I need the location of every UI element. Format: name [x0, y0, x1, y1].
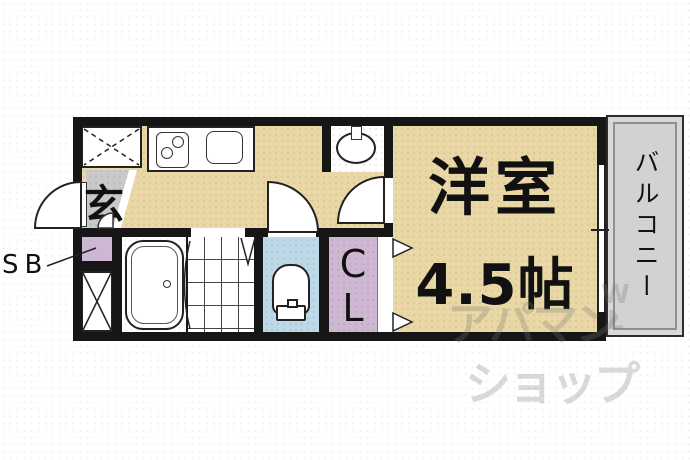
washroom-folding-door-icon: [241, 238, 255, 264]
bath-door-arc: [185, 241, 191, 329]
entrance-door-arc: [35, 182, 81, 228]
sb-leader-line: [47, 248, 96, 266]
toilet-door-arc: [268, 182, 318, 232]
linework-overlay: [0, 0, 690, 460]
genkan-door-arc: [98, 213, 113, 228]
closet-folding-door-icon: [393, 313, 412, 331]
closet-folding-door-icon: [393, 239, 412, 257]
room-door-arc: [338, 177, 384, 223]
floorplan-canvas: 玄 SB C L 洋室 4.5帖 バルコニー アパマン ショップ W L: [0, 0, 690, 460]
